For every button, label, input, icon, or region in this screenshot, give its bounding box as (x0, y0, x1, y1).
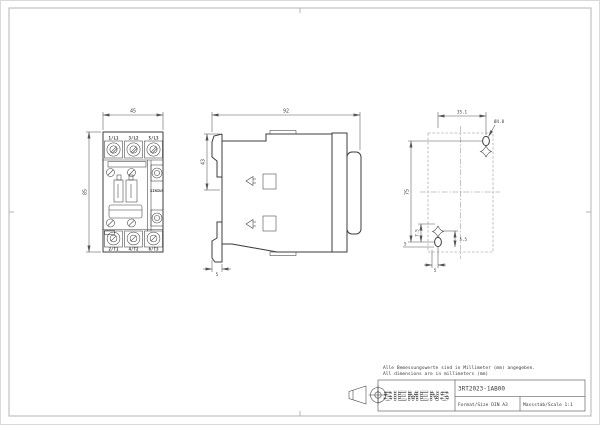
front-width-dim: 45 (130, 109, 136, 115)
side-profile (212, 131, 361, 263)
terminal-label-4t2: 4/T2 (128, 247, 139, 252)
drill-offset-a-dim: 7.5 (415, 229, 420, 237)
sirius-brand-label: SIRIUS (150, 188, 164, 193)
projection-symbol-icon (349, 386, 388, 405)
front-body-detail: SIRIUS (103, 160, 164, 235)
note-en: All dimensions are in millimeters (mm) (383, 371, 488, 377)
drill-offset-b-dim: 5 (404, 242, 407, 247)
terminal-label-1l1: 1/L1 (108, 136, 119, 141)
side-view: 92 43 (201, 109, 362, 278)
drill-plan-view: 35.1 Ø4.8 75 7.5 5 5.5 5 (403, 110, 505, 274)
drill-offset-c-dim: 5.5 (460, 237, 468, 242)
frame-center-marks (9, 8, 591, 416)
mounting-hole-bottom (433, 226, 444, 268)
technical-drawing: 45 85 1/L1 3/L2 5/L3 (0, 0, 600, 425)
drill-hole-diameter: Ø4.8 (494, 119, 505, 124)
scale-label: Massstab/Scale 1:1 (523, 402, 573, 408)
terminal-label-2t1: 2/T1 (108, 247, 119, 252)
siemens-logo: SIEMENS (383, 388, 450, 404)
format-size-label: Format/Size DIN A3 (458, 402, 508, 408)
title-block: Alle Bemessungswerte sind in Millimeter … (378, 365, 585, 411)
front-height-dim: 85 (83, 189, 89, 195)
terminal-label-3l2: 3/L2 (128, 136, 139, 141)
part-number: 3RT2023-1AB00 (458, 386, 505, 393)
drawing-sheet: 45 85 1/L1 3/L2 5/L3 (0, 0, 600, 425)
drill-offset-d-dim: 5 (434, 268, 437, 273)
note-de: Alle Bemessungswerte sind in Millimeter … (383, 365, 535, 371)
terminal-label-5l3: 5/L3 (148, 136, 159, 141)
side-depth-dim: 92 (283, 109, 289, 115)
terminal-label-6t3: 6/T3 (148, 247, 159, 252)
drill-spacing-x-dim: 35.1 (457, 110, 468, 115)
bottom-terminal-row: 2/T1 4/T2 6/T3 (105, 231, 163, 252)
front-view: 45 85 1/L1 3/L2 5/L3 (83, 109, 165, 253)
sheet-frame (9, 8, 591, 416)
side-rail-dim: 5 (216, 272, 219, 277)
terminal-screw-icon (107, 143, 160, 156)
drill-spacing-y-dim: 75 (405, 189, 411, 195)
terminal-screw-icon (107, 232, 160, 245)
image-border (1, 1, 600, 425)
side-upper-dim: 43 (201, 159, 207, 165)
top-terminal-row: 1/L1 3/L2 5/L3 (105, 136, 163, 159)
